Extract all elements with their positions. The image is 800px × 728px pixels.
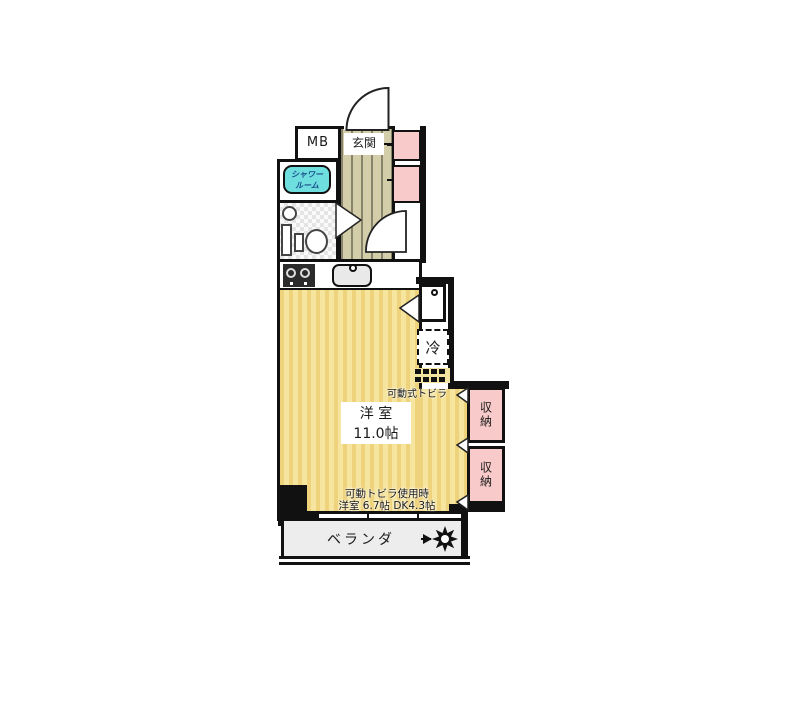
toilet-tank-icon (294, 233, 304, 252)
hall-closet-lower (392, 165, 421, 203)
window-divider (367, 514, 369, 518)
washer-nook-door-icon (399, 294, 420, 323)
vanity-icon (281, 224, 292, 256)
pillar-block (278, 485, 307, 526)
toilet-door-icon (335, 202, 363, 239)
refrigerator-space: 冷 (417, 329, 449, 365)
bifold-door-icon (456, 437, 469, 454)
shower-label-line2: ルーム (295, 180, 319, 191)
storage-closet-1: 収納 (467, 387, 505, 443)
main-room-label: 洋 室 11.0帖 (341, 402, 411, 444)
balcony-right-wall (461, 508, 468, 558)
balcony-label: ベランダ (316, 529, 406, 549)
entrance-door-arc-icon (343, 85, 391, 131)
washer-faucet-icon (431, 289, 438, 296)
washbasin-icon (282, 206, 297, 221)
storage-label-2: 収納 (470, 449, 502, 501)
faucet-icon (349, 264, 357, 272)
window-divider (417, 514, 419, 518)
meter-box-room: MB (295, 126, 341, 161)
kitchen-counter (280, 262, 419, 290)
water-heater-icon (421, 524, 459, 554)
shower-tub-icon: シャワー ルーム (283, 165, 331, 194)
floor-plan: MB 玄関 シャワー ルーム (277, 84, 531, 568)
room-name: 洋 室 (360, 403, 392, 423)
stove-icon (283, 264, 315, 287)
balcony-railing (279, 556, 470, 565)
hall-room-door-arc-icon (363, 208, 408, 253)
toilet-room (277, 200, 339, 262)
movable-partition-stack-icon (414, 368, 450, 383)
shower-room: シャワー ルーム (277, 159, 339, 203)
closet-door-tick (387, 144, 394, 146)
storage-label-1: 収納 (470, 390, 502, 440)
hall-closet-upper (392, 130, 421, 161)
storage-closet-2: 収納 (467, 446, 505, 504)
closet-door-tick (387, 179, 394, 181)
entrance-label: 玄関 (344, 133, 384, 155)
toilet-bowl-icon (305, 229, 328, 254)
note-room-sizes: 洋室 6.7帖 DK4.3帖 (305, 498, 469, 513)
room-size: 11.0帖 (353, 423, 398, 443)
shower-label-line1: シャワー (291, 169, 323, 180)
right-wall-top (420, 126, 426, 263)
sink-icon (332, 264, 372, 287)
movable-door-label: 可動式トビラ (365, 385, 469, 398)
washer-pan-icon (419, 284, 446, 322)
